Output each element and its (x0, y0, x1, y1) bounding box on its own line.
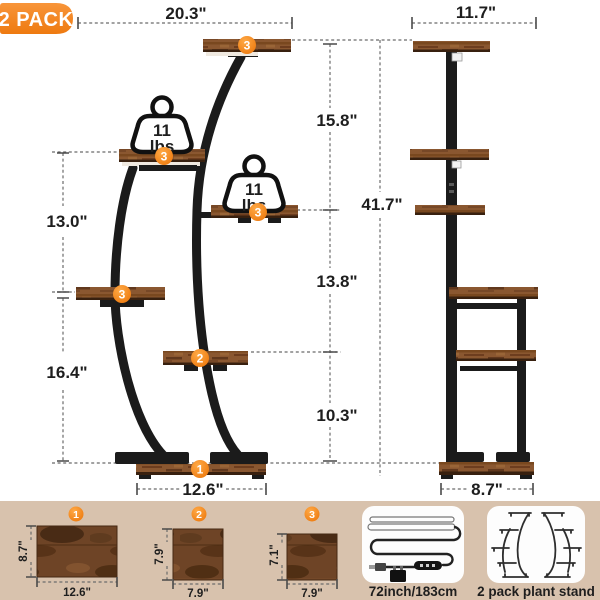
clip (452, 53, 462, 61)
support-post (517, 297, 526, 462)
side-lower-height-label: 10.3" (316, 406, 357, 425)
panel-board-3 (287, 534, 337, 580)
right-foot-plate (210, 452, 268, 464)
pack-count-banner: 2 PACK (0, 3, 73, 34)
svg-text:3: 3 (309, 509, 315, 521)
shelf-bracket (139, 165, 197, 171)
led-strip-label: 72inch/183cm (369, 584, 458, 599)
dimension-lines (52, 17, 536, 495)
panel3-height-label: 7.1" (269, 544, 281, 565)
vertical-pole (446, 48, 457, 462)
side-view-stand (410, 41, 538, 479)
svg-text:2: 2 (196, 509, 202, 521)
svg-text:2: 2 (197, 352, 204, 366)
diagram-canvas: 20.3" 11.7" 13.0" 16.4" 15.8" 41.7" 13.8… (0, 0, 600, 600)
svg-text:3: 3 (119, 288, 126, 302)
pack-count-label: 2 PACK (0, 9, 73, 31)
panel2-width-label: 7.9" (187, 588, 208, 600)
panel-board-2 (173, 529, 223, 580)
svg-text:1: 1 (73, 509, 79, 521)
front-upper-height-label: 13.0" (46, 212, 87, 231)
svg-text:3: 3 (161, 150, 168, 164)
right-curved-leg (197, 57, 241, 455)
left-foot-plate (115, 452, 189, 464)
card-background (487, 506, 585, 583)
stand-pack-label: 2 pack plant stand (477, 584, 595, 599)
side-middle-height-label: 13.8" (316, 272, 357, 291)
front-top-width-label: 20.3" (165, 4, 206, 23)
stand-pack-card: 2 pack plant stand (477, 506, 595, 599)
product-dimension-diagram: 20.3" 11.7" 13.0" 16.4" 15.8" 41.7" 13.8… (0, 0, 600, 600)
front-lower-height-label: 16.4" (46, 363, 87, 382)
panel-board-1 (37, 526, 117, 577)
led-strip-card: 72inch/183cm (362, 506, 464, 599)
panel2-height-label: 7.9" (154, 543, 166, 564)
svg-text:3: 3 (244, 39, 251, 53)
panel3-width-label: 7.9" (301, 588, 322, 600)
panel1-width-label: 12.6" (63, 587, 91, 599)
side-upper-height-label: 15.8" (316, 111, 357, 130)
side-base-depth-label: 8.7" (471, 480, 503, 499)
left-curved-leg (115, 168, 163, 455)
front-view-stand (76, 39, 298, 479)
svg-text:1: 1 (197, 463, 204, 477)
svg-text:3: 3 (255, 206, 262, 220)
side-total-height-label: 41.7" (361, 195, 402, 214)
panel1-height-label: 8.7" (18, 540, 30, 561)
clip (452, 161, 461, 168)
side-top-depth-label: 11.7" (456, 3, 496, 22)
info-strip: 1 8.7" 12.6" 2 7.9" 7.9" 3 7.1" 7.9" (0, 501, 600, 600)
front-base-width-label: 12.6" (182, 480, 223, 499)
